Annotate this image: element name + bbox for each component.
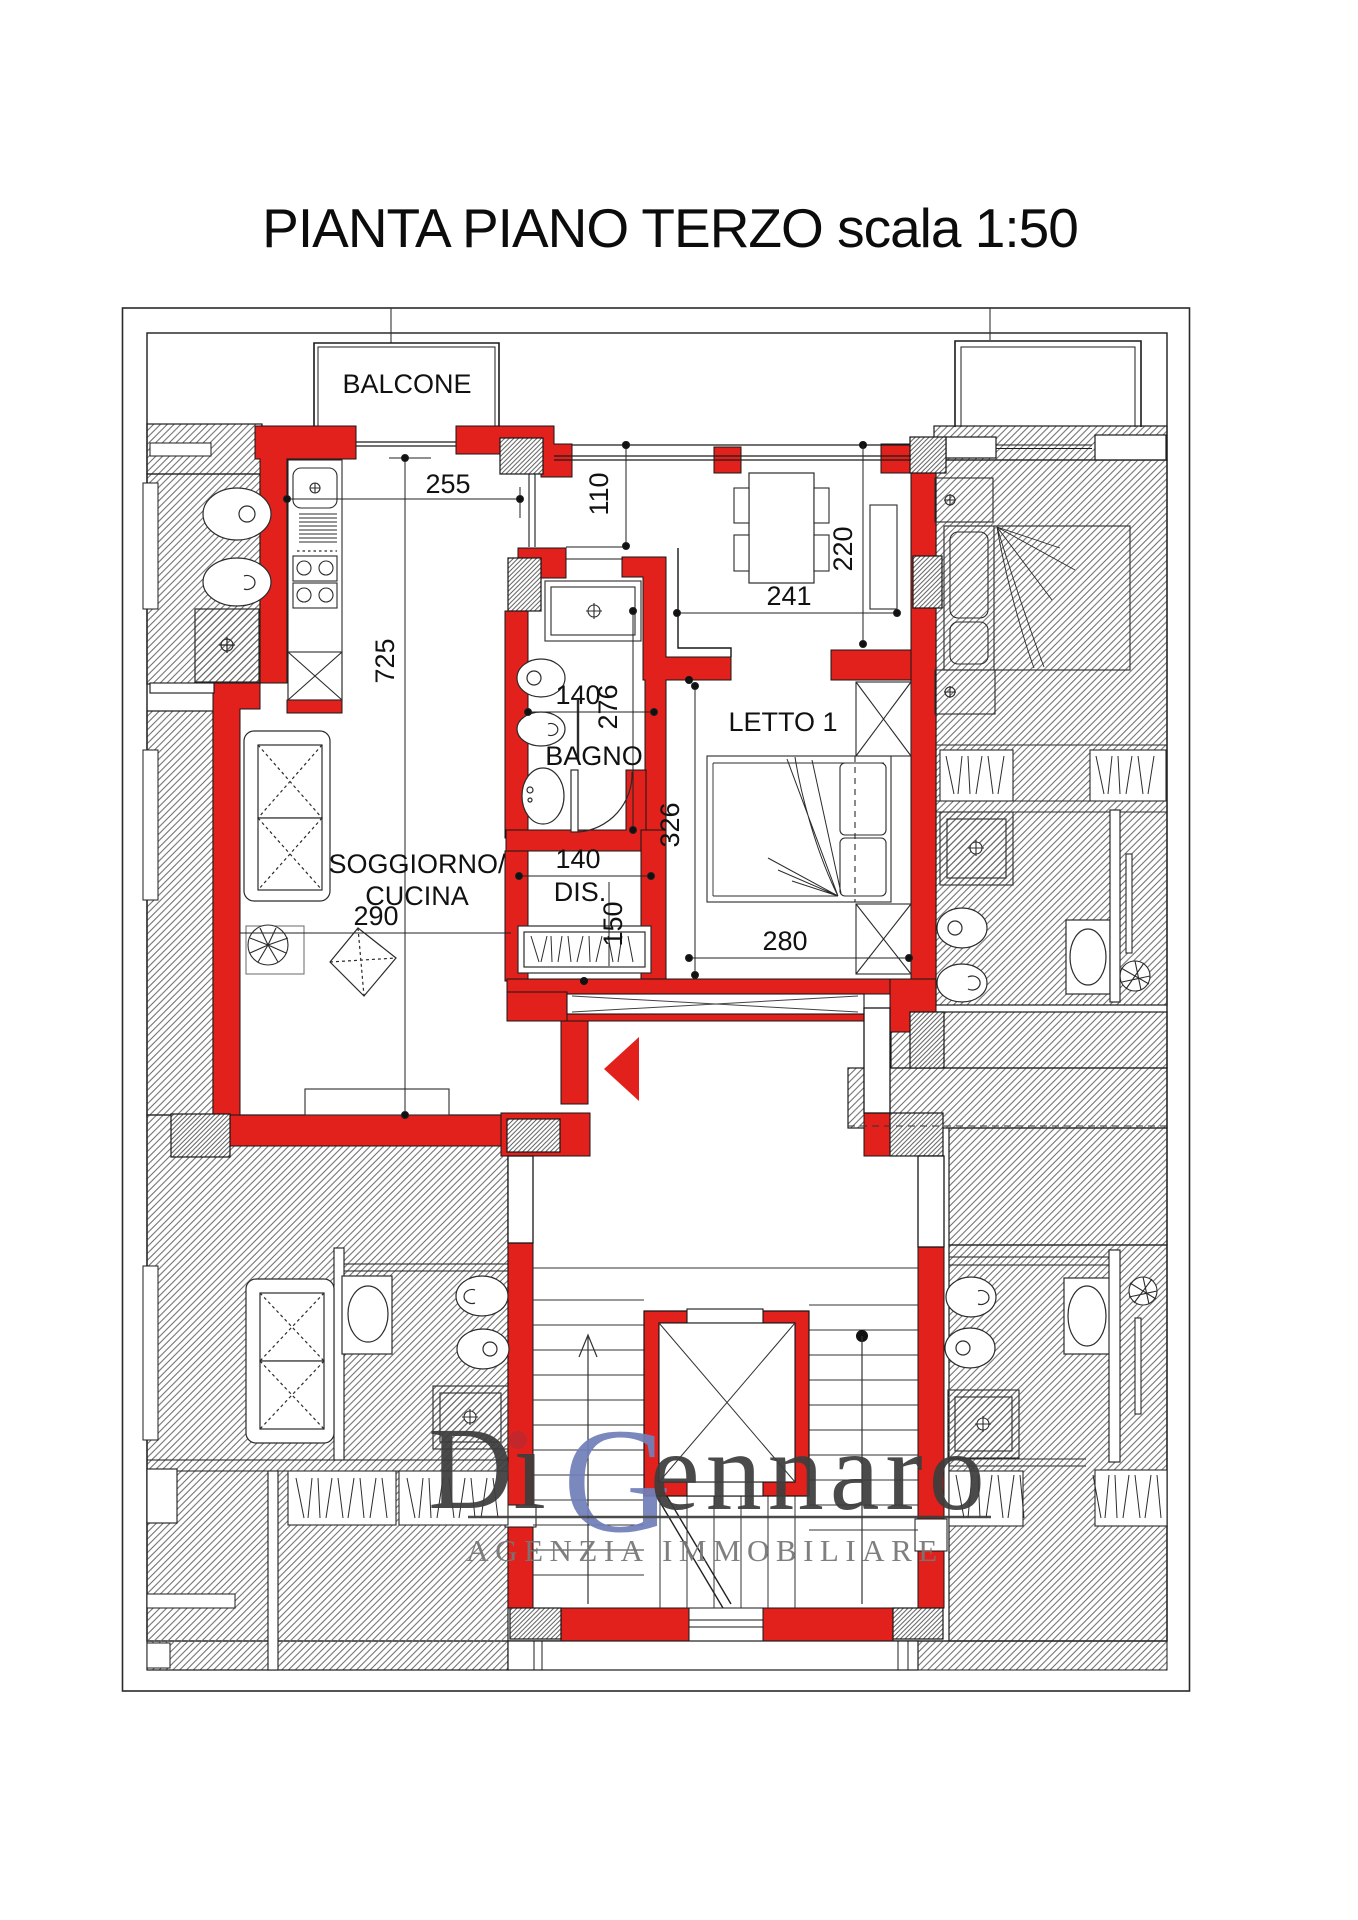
svg-text:Dı: Dı [428,1403,546,1534]
svg-text:ennaro: ennaro [650,1410,991,1534]
svg-text:255: 255 [425,469,470,499]
svg-text:241: 241 [766,581,811,611]
svg-text:140: 140 [555,844,600,874]
svg-text:PIANTA PIANO TERZO scala 1:50: PIANTA PIANO TERZO scala 1:50 [262,197,1078,259]
svg-text:SOGGIORNO/: SOGGIORNO/ [328,849,506,879]
svg-text:150: 150 [598,901,628,946]
svg-text:BALCONE: BALCONE [342,369,471,399]
svg-text:220: 220 [828,526,858,571]
svg-text:CUCINA: CUCINA [365,881,469,911]
svg-text:BAGNO: BAGNO [545,741,643,771]
svg-text:725: 725 [370,638,400,683]
svg-text:LETTO 1: LETTO 1 [728,707,837,737]
svg-text:AGENZIA IMMOBILIARE: AGENZIA IMMOBILIARE [466,1533,943,1568]
svg-text:280: 280 [762,926,807,956]
svg-text:110: 110 [584,472,614,515]
svg-text:326: 326 [655,802,685,847]
svg-text:DIS.: DIS. [554,877,607,907]
svg-text:276: 276 [593,684,623,729]
